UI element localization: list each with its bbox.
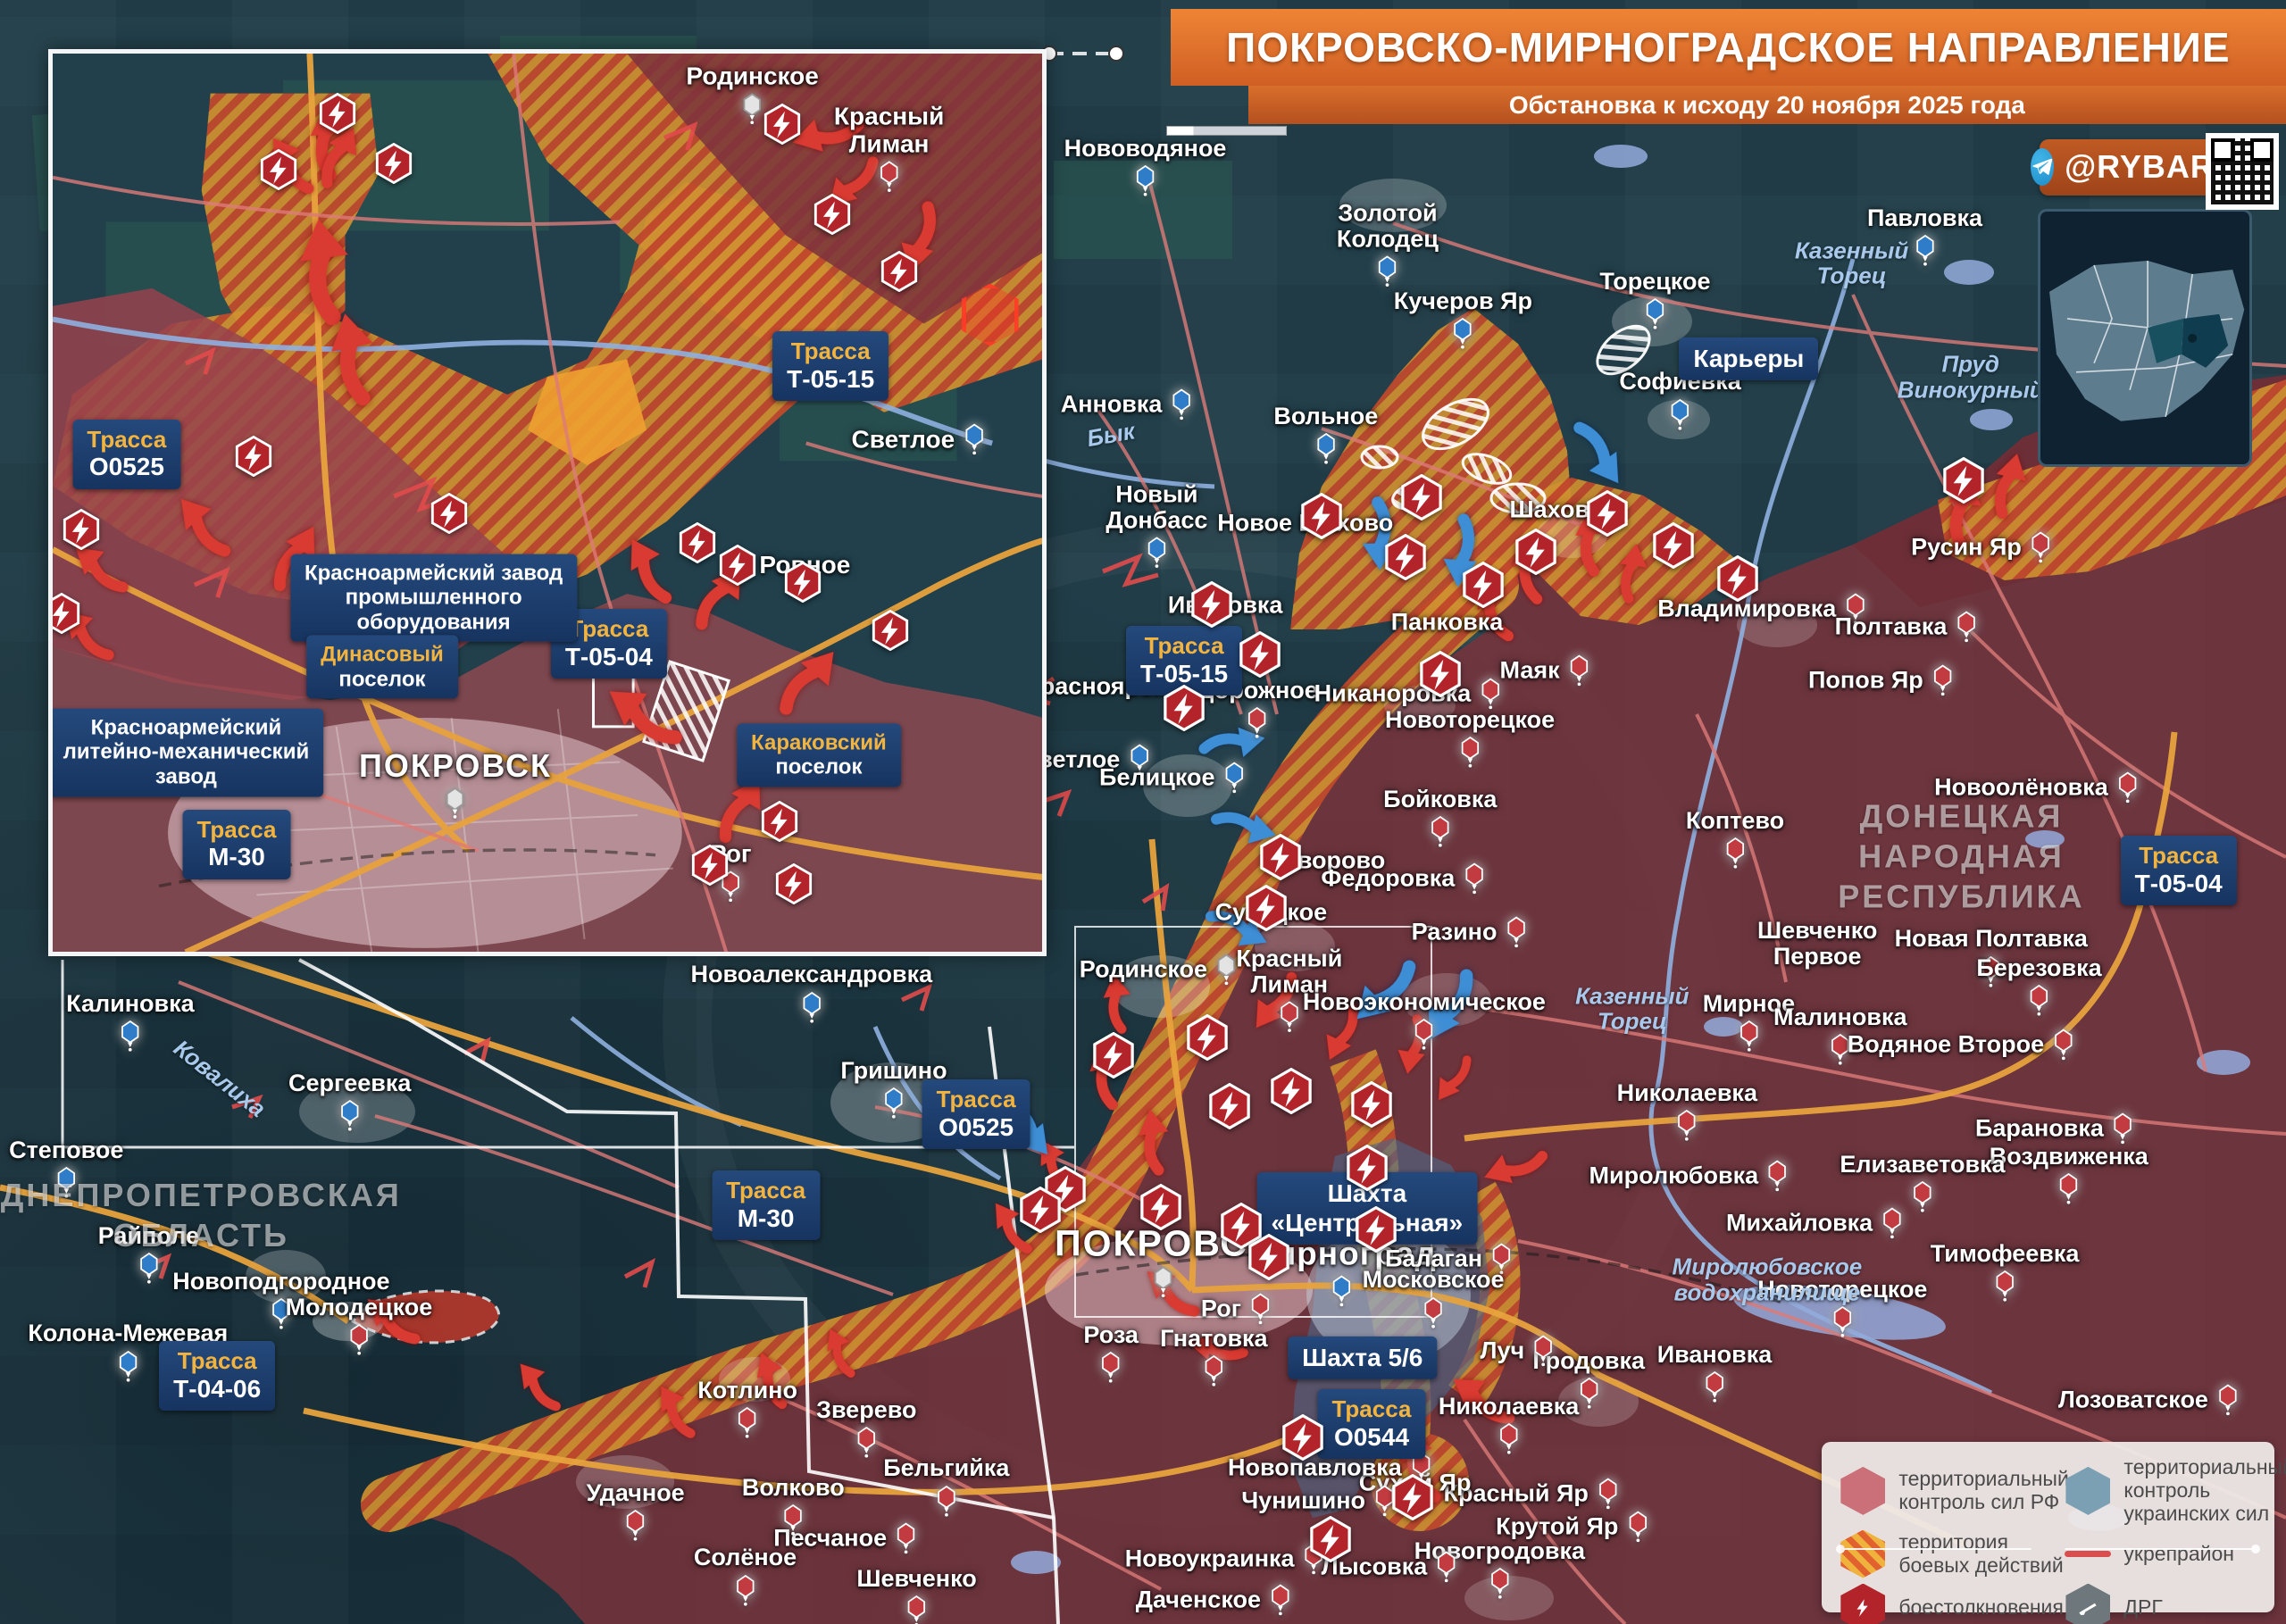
settlement-label: Покровск [359,749,552,784]
legend-item: ДРГ [2065,1583,2257,1624]
clash-icon [677,522,718,563]
clash-icon [1348,1081,1395,1128]
legend-item: укрепрайон [2065,1529,2257,1579]
clash-icon [782,562,823,603]
clash-icon [1237,631,1283,678]
subtitle-banner: Обстановка к исходу 20 ноября 2025 года [1248,86,2286,124]
clash-icon [1940,457,1987,504]
clash-icon [1417,651,1464,697]
hex-stripes-icon [1840,1530,1885,1578]
pokrovsk-inset-map: РодинскоеКрасныйЛиманСветлоеРовноеПокров… [48,49,1047,957]
legend-label: территория боевых действий [1898,1531,2065,1578]
legend-item: территориальный контроль сил РФ [1840,1466,2065,1516]
clash-icon [717,545,758,586]
settlement: Покровск [359,749,552,819]
clash-icon [1389,1474,1436,1520]
clash-icon [1246,1234,1292,1280]
settlement: Светлое [852,424,987,455]
clash-icon [1584,490,1631,537]
clash-icon [1344,1145,1390,1191]
marker-frontline-icon [443,787,467,819]
hex-clash-icon [1840,1584,1885,1624]
ukreprayon-line-icon [2065,1551,2111,1557]
legend-stripes-icon [1840,1529,1886,1579]
legend-label: боестолкновения [1898,1596,2064,1620]
clash-icon [48,593,82,634]
page-subtitle: Обстановка к исходу 20 ноября 2025 года [1509,91,2025,120]
ukraine-locator-map [2038,209,2252,468]
clash-icon [1161,685,1207,731]
marker-ukraine-icon [962,424,986,455]
legend-red-icon [1840,1466,1886,1516]
legend-item: территориальный контроль украинских сил [2065,1456,2257,1525]
map-page: НововодяноеЗолотойКолодецПавловкаТорецко… [0,0,2286,1624]
legend-line-red-icon [2065,1529,2111,1579]
rybar-badge: @RYBAR [2040,139,2207,196]
scale-bar [1166,126,1287,136]
road-label-box: ТрассаО0525 [72,420,180,489]
clash-icon [1714,555,1761,602]
clash-icon [1017,1187,1064,1233]
clash-icon [1460,562,1506,608]
clash-icon [1257,834,1304,880]
clash-icon [1189,581,1235,628]
clash-icon [258,149,299,190]
clash-icon [61,509,102,550]
clash-icon [879,251,920,292]
clash-icon [762,104,803,145]
legend-item: территория боевых действий [1840,1529,2065,1579]
legend-label: территориальный контроль украинских сил [2123,1456,2286,1525]
legend-blue-icon [2065,1466,2111,1516]
road-label-box: Караковскийпоселок [737,723,901,787]
hex-red-icon [1840,1467,1885,1515]
hex-blue-icon [2065,1467,2110,1515]
telegram-icon [2031,148,2054,186]
legend-label: территориальный контроль сил РФ [1898,1468,2068,1514]
clash-icon [1090,1032,1137,1079]
clash-icon [1243,885,1289,931]
clash-icon [1307,1516,1354,1562]
title-banner: ПОКРОВСКО-МИРНОГРАДСКОЕ НАПРАВЛЕНИЕ [1171,9,2286,86]
clash-icon [429,493,470,534]
clash-icon [373,143,414,184]
clash-icon [1138,1184,1184,1230]
hex-drg-icon [2065,1584,2110,1624]
clash-icon [812,194,853,235]
clash-icon [773,863,814,904]
clash-icon [1382,534,1429,580]
brand-handle: @RYBAR [2065,148,2215,186]
settlement-label: Родинское [686,62,819,89]
clash-icon [1206,1083,1253,1129]
legend-clash-icon [1840,1583,1886,1624]
road-label-box: ТрассаТ-05-15 [772,331,889,401]
clash-icon [689,845,730,886]
road-label-box: Красноармейскийлитейно-механическийзавод [49,708,324,796]
clash-icon [233,436,274,477]
road-label-box: Динасовыйпоселок [306,636,458,699]
qr-code [2206,133,2279,209]
clash-icon [1184,1014,1231,1061]
road-label-box: Красноармейский заводпромышленногооборуд… [290,554,577,642]
clash-icon [1398,474,1445,521]
legend-label: укрепрайон [2123,1543,2234,1566]
clash-icon [1513,529,1559,575]
clash-icon [1650,522,1697,569]
legend-panel: территориальный контроль сил РФтерритори… [1822,1442,2274,1612]
clash-icon [1280,1414,1326,1461]
legend-divider [1838,1548,2258,1550]
legend-label: ДРГ [2123,1596,2162,1620]
clash-icon [1268,1068,1314,1114]
page-title: ПОКРОВСКО-МИРНОГРАДСКОЕ НАПРАВЛЕНИЕ [1226,23,2230,71]
clash-icon [870,610,911,651]
advance-arrow-icon [286,216,365,327]
clash-icon [759,801,800,842]
legend-drg-icon [2065,1583,2111,1624]
settlement-label: Светлое [852,426,955,453]
road-label-box: ТрассаМ-30 [183,810,291,879]
clash-icon [317,93,358,134]
clash-icon [1353,1206,1399,1253]
clash-icon [1298,493,1345,539]
legend-item: боестолкновения [1840,1583,2065,1624]
